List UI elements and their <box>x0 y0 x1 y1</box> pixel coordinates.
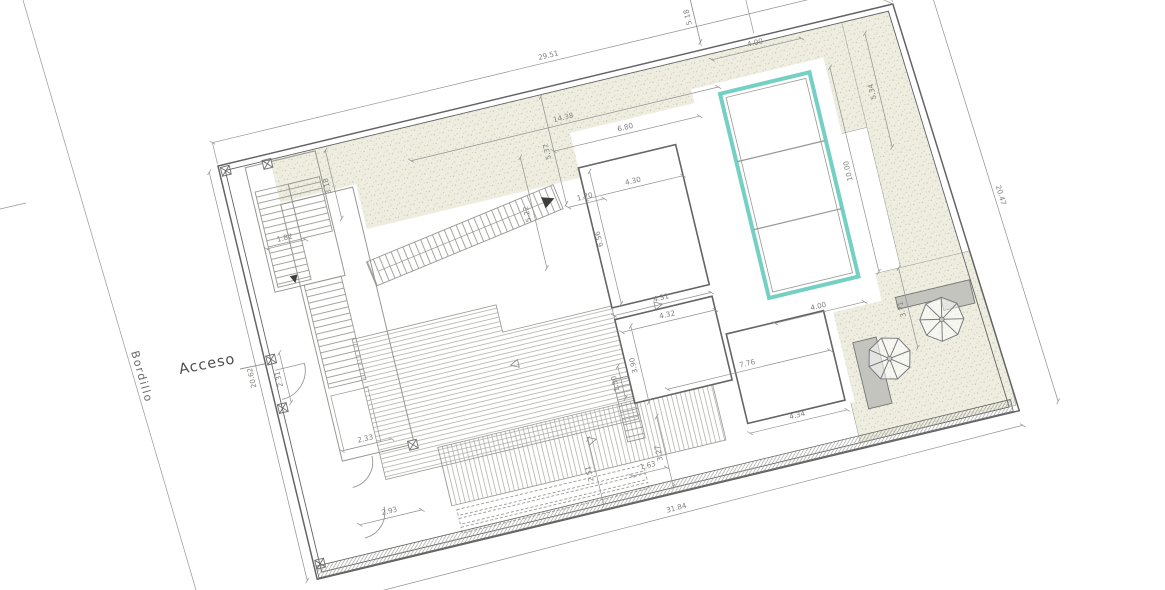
dimension-label: 5.18 <box>681 8 694 26</box>
acceso-label: Acceso <box>178 351 237 378</box>
dimension: 5.18 <box>676 0 703 47</box>
dimension-label: 20.47 <box>994 184 1009 206</box>
site-plan-canvas: Bordillo Acceso <box>0 0 1165 590</box>
property-line-stub <box>0 203 26 209</box>
street-lines <box>0 0 196 590</box>
site-plan-drawing: Bordillo Acceso <box>0 0 1165 590</box>
post-icon <box>408 439 419 450</box>
curb-line <box>23 0 196 590</box>
plot-group: 29.513.585.345.184.0014.386.805.375.223.… <box>182 0 1067 590</box>
bordillo-label: Bordillo <box>128 349 155 404</box>
